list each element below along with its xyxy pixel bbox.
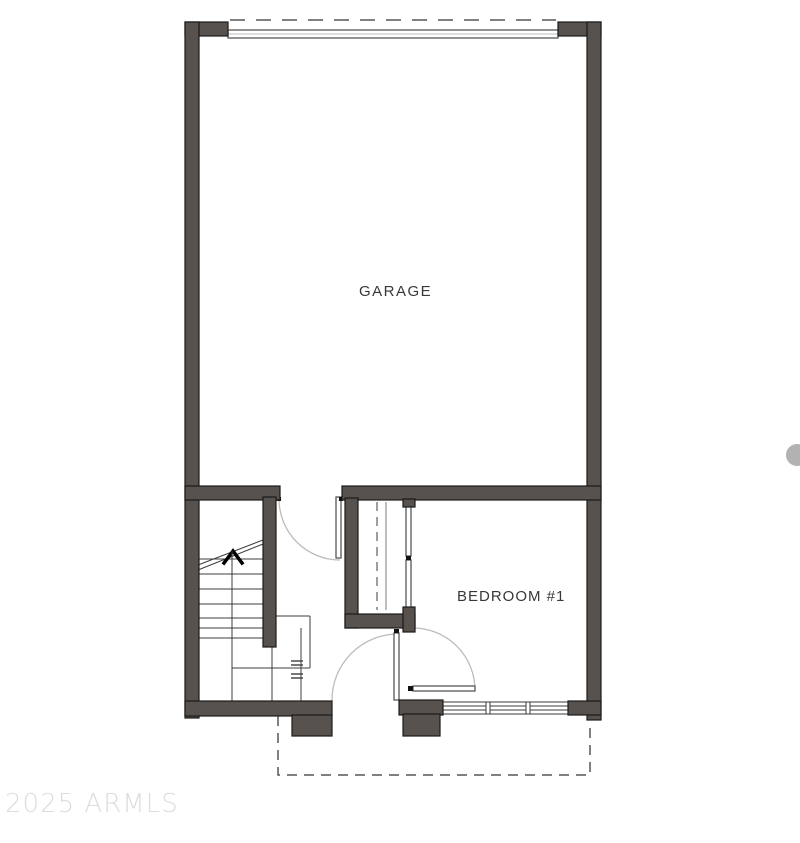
wall-closet-top-stub [403,499,415,507]
garage-room-label: GARAGE [359,283,432,300]
bedroom-window [443,702,568,714]
stair-up-arrow [224,551,242,563]
wall-right [587,22,601,720]
wall-pier-left [292,715,332,736]
wall-closet-left [345,498,358,628]
stair-treads [198,559,263,638]
doors [277,497,475,701]
front-door-swing-arc [332,634,398,701]
wall-pier-middle [403,714,440,736]
floor-plan: GARAGE BEDROOM #1 2025 ARMLS [0,0,800,843]
wall-bottom-middle [399,700,443,715]
door-hinge-nub [408,686,413,691]
bedroom-door-swing-arc [413,628,475,690]
garage-entry-door-leaf [336,497,341,558]
bedroom-room-label: BEDROOM #1 [457,588,565,605]
wall-garage-divider-right [342,486,601,500]
walls [185,22,601,736]
window-mullion [526,702,530,714]
wall-bottom-right [568,701,601,715]
gray-dot-marker [786,444,800,466]
wall-left [185,22,199,718]
floor-plan-drawing [0,0,800,843]
wall-stair-enclosure [263,497,276,647]
window-mullion [486,702,490,714]
staircase [198,540,310,701]
wall-bedroom-door-stub [403,607,415,632]
garage-door [228,20,558,38]
bedroom-door-leaf [413,686,475,691]
garage-entry-door-swing-arc [279,499,340,560]
armls-watermark: 2025 ARMLS [5,789,179,819]
door-stop-nub [394,629,399,633]
window-frame [443,702,568,714]
wall-bottom-left [185,701,332,716]
front-door-leaf [394,633,399,700]
closet [377,499,411,625]
closet-door-cap [406,556,411,560]
